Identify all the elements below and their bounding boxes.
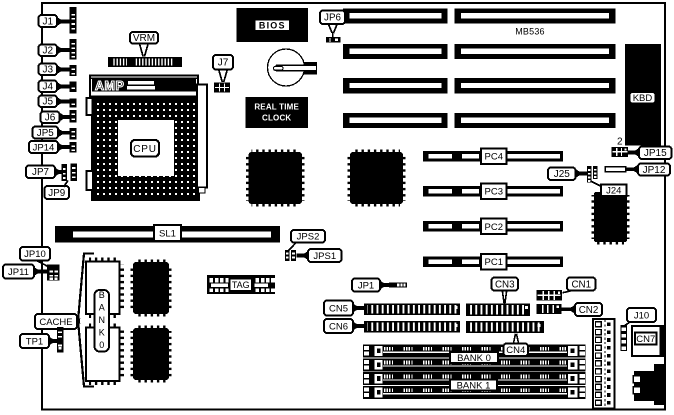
svg-text:KBD: KBD (633, 93, 653, 104)
svg-text:J1: J1 (42, 16, 53, 27)
svg-text:TAG: TAG (232, 280, 250, 290)
svg-text:JP1: JP1 (358, 280, 374, 291)
svg-text:CN7: CN7 (636, 334, 655, 345)
svg-text:J25: J25 (554, 169, 571, 180)
svg-text:CN1: CN1 (571, 279, 591, 290)
svg-text:PC4: PC4 (485, 152, 503, 163)
svg-text:2: 2 (617, 137, 623, 148)
svg-text:JP6: JP6 (324, 13, 341, 24)
svg-text:K: K (99, 327, 105, 337)
svg-text:PC3: PC3 (485, 187, 503, 198)
svg-text:CN4: CN4 (506, 345, 525, 356)
svg-text:CN6: CN6 (329, 321, 348, 332)
svg-text:J2: J2 (42, 46, 53, 57)
svg-text:0: 0 (99, 340, 104, 350)
svg-text:JP12: JP12 (643, 165, 666, 176)
svg-text:JP11: JP11 (8, 267, 29, 278)
svg-text:CN3: CN3 (495, 279, 515, 290)
svg-text:CLOCK: CLOCK (262, 114, 291, 123)
svg-text:PC2: PC2 (485, 222, 503, 233)
svg-text:REAL TIME: REAL TIME (254, 103, 299, 112)
svg-text:J7: J7 (218, 58, 229, 69)
svg-text:TP1: TP1 (26, 336, 43, 347)
svg-text:J5: J5 (42, 97, 53, 108)
svg-text:PC1: PC1 (485, 257, 503, 268)
svg-text:A: A (99, 303, 105, 313)
svg-text:J4: J4 (42, 82, 53, 93)
svg-text:BIOS: BIOS (259, 21, 286, 31)
svg-text:AMP: AMP (95, 79, 124, 93)
svg-text:CN2: CN2 (579, 305, 599, 316)
svg-text:CN5: CN5 (329, 303, 348, 314)
svg-text:BANK 1: BANK 1 (457, 380, 491, 391)
svg-text:J24: J24 (606, 186, 621, 197)
svg-text:JP7: JP7 (32, 167, 49, 178)
svg-text:J3: J3 (42, 65, 53, 76)
svg-text:JP14: JP14 (33, 142, 55, 153)
svg-text:JPS2: JPS2 (297, 232, 320, 243)
svg-text:J6: J6 (45, 113, 56, 124)
svg-text:J10: J10 (634, 310, 649, 321)
svg-text:JPS1: JPS1 (313, 251, 336, 262)
svg-text:JP10: JP10 (24, 249, 46, 260)
svg-text:CACHE: CACHE (39, 317, 72, 328)
svg-text:VRM: VRM (133, 33, 155, 44)
svg-text:SL1: SL1 (159, 228, 176, 239)
svg-text:JP15: JP15 (644, 148, 667, 159)
svg-text:BANK 0: BANK 0 (457, 353, 491, 364)
svg-text:JP9: JP9 (48, 188, 65, 199)
svg-text:N: N (99, 315, 106, 325)
svg-text:MB536: MB536 (515, 27, 545, 37)
svg-text:CPU: CPU (133, 144, 157, 155)
svg-text:B: B (99, 290, 105, 300)
svg-text:JP5: JP5 (37, 128, 54, 139)
